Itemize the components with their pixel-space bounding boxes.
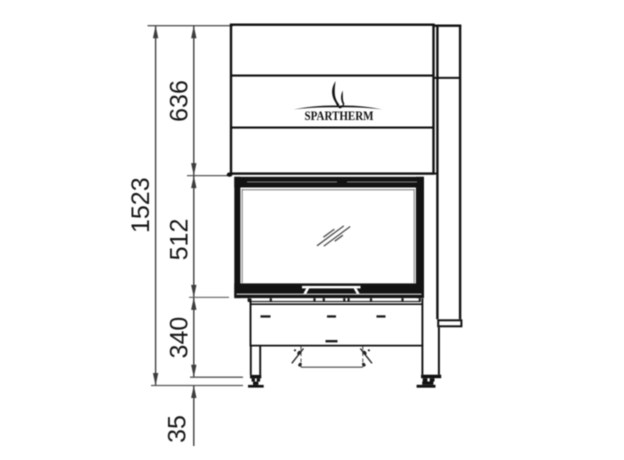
svg-text:1523: 1523 [127,177,155,233]
svg-text:512: 512 [166,219,194,261]
svg-text:35: 35 [164,415,192,443]
svg-text:340: 340 [166,317,194,359]
svg-text:SPARTHERM: SPARTHERM [305,108,374,123]
svg-text:636: 636 [166,80,194,122]
